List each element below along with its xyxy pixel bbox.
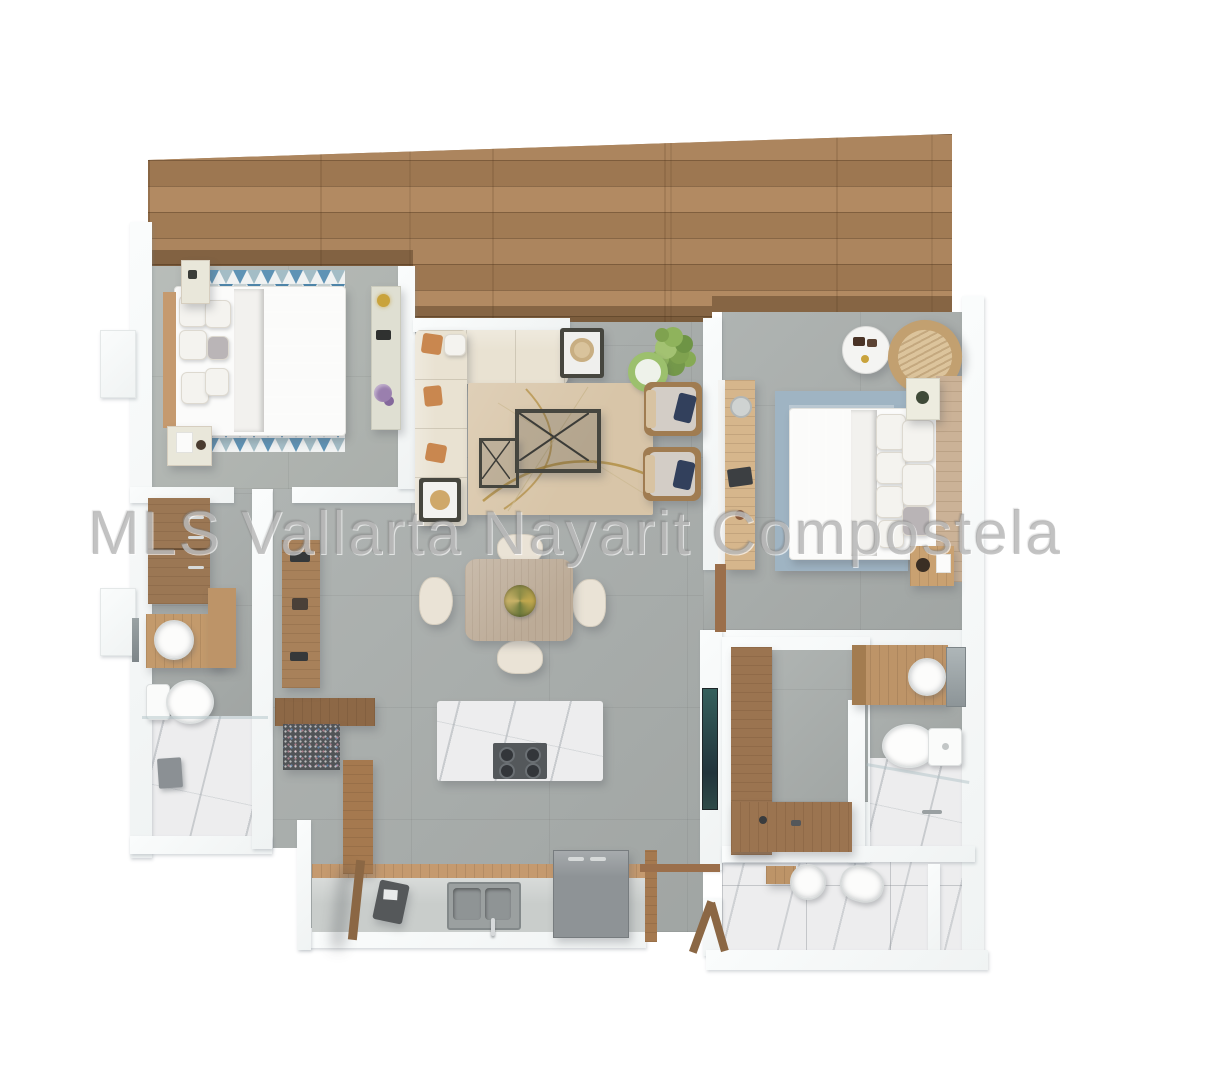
bedroom1-picture-frame [176, 432, 193, 453]
kitchen-wood-panel [343, 760, 373, 874]
hall-tall-cabinet [282, 540, 320, 688]
outer-wall-bottom-laundry [706, 950, 988, 970]
closet-decor [759, 816, 767, 824]
master-nightstand-bottom [910, 546, 954, 586]
basket-lamp [570, 338, 594, 362]
coffee-table [515, 409, 601, 473]
dining-centerpiece [504, 585, 536, 617]
bathroom1-side-panel [208, 588, 236, 668]
master-pillow [878, 520, 904, 548]
bathroom2-sink [908, 658, 946, 696]
master-desk-edge [718, 380, 725, 570]
fridge-handle [590, 857, 606, 861]
bathroom1-east-wall [252, 489, 272, 849]
hall-wall-desk [275, 698, 375, 726]
cooktop [493, 743, 547, 779]
bedroom1-console-lamp [377, 294, 390, 307]
refrigerator [553, 850, 629, 938]
bathroom1-sink [154, 620, 194, 660]
nightstand-picture-frame [936, 554, 951, 573]
sink-bowl-left [453, 888, 481, 920]
bedroom1-nightstand-decor [188, 270, 197, 279]
master-accent-pillow [902, 506, 930, 536]
armchair-2 [643, 447, 701, 501]
armchair-1 [644, 382, 702, 436]
coffee-tray [867, 339, 877, 347]
cabinet-decor [290, 552, 310, 562]
dining-chair-bottom [497, 640, 543, 674]
living-side-table-lamp [560, 328, 604, 378]
closet-decor [791, 820, 801, 826]
vanity-side-column [852, 645, 866, 705]
nightstand-plant [916, 391, 929, 404]
cabinet-decor [292, 598, 308, 610]
coffee-tray [853, 337, 865, 346]
master-wall-desk [725, 380, 755, 570]
desk-round-mirror [730, 396, 752, 418]
bathroom2-mirror [946, 647, 966, 707]
master-sheet-fold [851, 410, 877, 556]
bedroom1-console-decor [376, 330, 391, 340]
bedroom1-knob-decor [196, 440, 206, 450]
bedroom1-sheet-fold [234, 289, 264, 432]
master-pillow [876, 486, 904, 518]
sofa-white-pillow [444, 334, 466, 356]
burner [525, 747, 541, 763]
bathroom2-shower-handle [922, 810, 942, 814]
bedroom1-console-flowers [374, 384, 392, 402]
laundry-divider-wall [928, 864, 940, 958]
sofa-orange-pillow [421, 333, 444, 356]
bathroom2-toilet-tank [928, 728, 962, 766]
wardrobe-handle [188, 516, 204, 519]
granite-stool [283, 724, 340, 770]
sofa-orange-pillow [423, 385, 443, 407]
sink-bowl-right [485, 888, 511, 920]
bedroom1-pillow [179, 330, 207, 360]
bedroom1-accent-pillow [207, 336, 229, 360]
bedroom1-pillow [205, 368, 229, 396]
master-nightstand-top [906, 378, 940, 420]
sofa-orange-pillow [425, 442, 448, 463]
deck-edge-shadow [712, 296, 952, 312]
flush-button [942, 743, 949, 750]
bedroom1-pillow [205, 300, 231, 328]
bathroom1-shower-glass [142, 716, 268, 719]
corner-post-wall [297, 820, 311, 950]
gold-dot-decor [861, 355, 869, 363]
paper [383, 889, 398, 900]
nightstand-round-decor [916, 558, 930, 572]
master-round-table [842, 326, 890, 374]
floor-plan-render: MLS Vallarta Nayarit Compostela [0, 0, 1223, 1080]
exterior-mask [268, 848, 300, 954]
armchair-throw [645, 455, 655, 493]
master-pillow [902, 420, 934, 462]
burner [499, 747, 515, 763]
laundry-round-sink [790, 864, 826, 900]
burner [499, 763, 515, 779]
kitchen-island [437, 701, 603, 781]
large-plant [655, 328, 669, 342]
wardrobe-handle [188, 566, 204, 569]
bedroom1-duvet [262, 289, 342, 432]
bathroom1-mirror [132, 618, 139, 662]
sofa-end-table [419, 478, 461, 522]
cabinet-decor [290, 652, 308, 661]
armchair-throw [646, 390, 656, 428]
fridge-handle [568, 857, 584, 861]
sofa-end-table-tray [430, 490, 450, 510]
wardrobe-handle [188, 536, 204, 539]
closet-wardrobe-bottom [731, 802, 852, 852]
bathroom1-shower-fixture [157, 757, 183, 789]
master-door-threshold [715, 564, 726, 632]
bathroom1-south-wall [130, 836, 272, 854]
kitchen-faucet [491, 918, 495, 936]
bedroom1-console [371, 286, 401, 430]
window-sill-left-bottom [100, 588, 136, 656]
desk-decor [735, 510, 745, 520]
laundry-threshold [640, 864, 720, 872]
bathroom1-wardrobe [148, 498, 210, 604]
master-pillow [902, 464, 934, 506]
desk-laptop [727, 466, 753, 487]
window-sill-left-top [100, 330, 136, 398]
bedroom1-nightstand-top [181, 260, 210, 304]
nesting-side-table [479, 438, 519, 488]
burner [525, 763, 541, 779]
bedroom1-south-wall-b [292, 487, 415, 503]
kitchen-sink [447, 882, 521, 930]
dining-chair-right [572, 579, 606, 627]
dining-chair-left [419, 577, 453, 625]
tv-screen [702, 688, 718, 810]
bedroom1-headboard [163, 292, 176, 428]
wardrobe-divider [148, 548, 210, 550]
